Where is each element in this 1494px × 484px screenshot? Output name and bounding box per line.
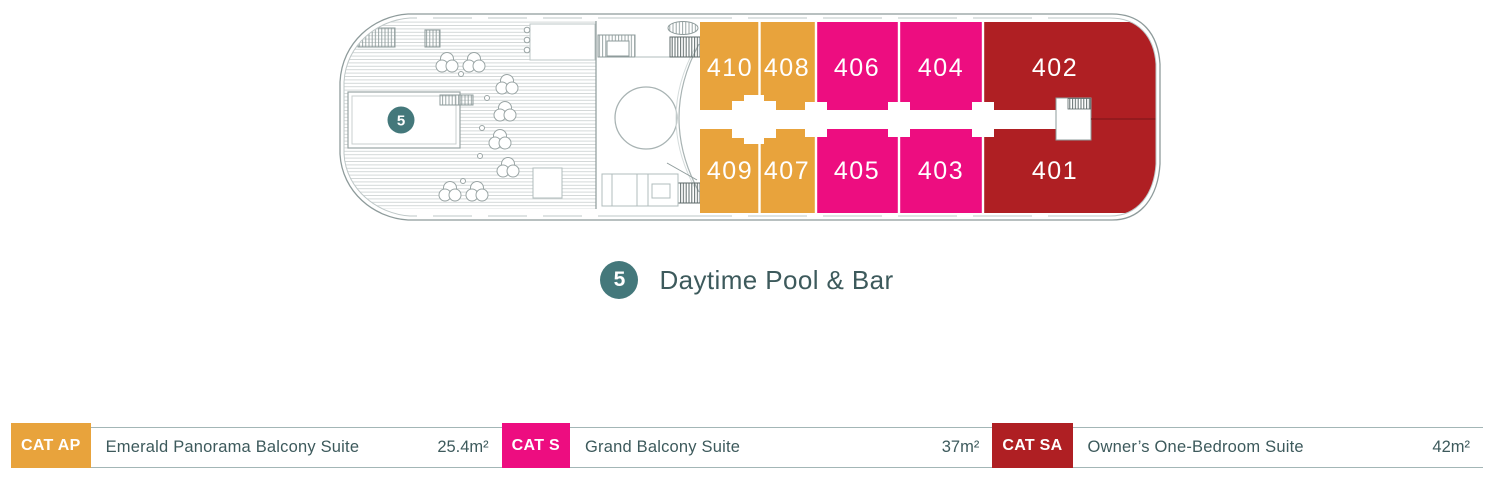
suite-size: 42m² [1432, 438, 1470, 457]
cabin-410-label: 410 [707, 54, 753, 82]
deck-plan-page: 5 [0, 0, 1494, 484]
lifeboat-icon [668, 22, 698, 35]
pool-marker-number: 5 [397, 113, 405, 130]
feature-legend: 5 Daytime Pool & Bar [0, 261, 1494, 299]
legend-item-cat-ap: CAT AP Emerald Panorama Balcony Suite 25… [11, 427, 502, 468]
cabin-407-label: 407 [764, 157, 810, 185]
stairs-icon [1068, 99, 1091, 110]
stairs-icon [670, 37, 700, 57]
cabin-blocks: 410 408 406 404 402 409 407 405 403 401 [700, 22, 1160, 213]
cabin-403-label: 403 [918, 157, 964, 185]
legend-item-cat-sa: CAT SA Owner’s One-Bedroom Suite 42m² [992, 427, 1483, 468]
feature-label: Daytime Pool & Bar [659, 265, 893, 296]
cabin-404-label: 404 [918, 54, 964, 82]
suite-name: Grand Balcony Suite [585, 438, 740, 457]
legend-item-cat-s: CAT S Grand Balcony Suite 37m² [502, 427, 993, 468]
cabin-401-label: 401 [1032, 157, 1078, 185]
category-badge: CAT SA [992, 423, 1072, 468]
category-badge: CAT S [502, 423, 570, 468]
cabin-402-label: 402 [1032, 54, 1078, 82]
category-badge: CAT AP [11, 423, 91, 468]
cabin-408-label: 408 [764, 54, 810, 82]
category-legend: CAT AP Emerald Panorama Balcony Suite 25… [11, 427, 1483, 468]
stairs-icon [440, 95, 473, 105]
suite-name: Owner’s One-Bedroom Suite [1088, 438, 1304, 457]
cabin-406-label: 406 [834, 54, 880, 82]
cabin-405-label: 405 [834, 157, 880, 185]
suite-size: 25.4m² [437, 438, 488, 457]
ship-deck-plan: 5 [330, 8, 1175, 228]
corridor [700, 110, 1056, 129]
suite-size: 37m² [942, 438, 980, 457]
stairs-icon [425, 30, 440, 47]
feature-marker-badge: 5 [600, 261, 638, 299]
suite-name: Emerald Panorama Balcony Suite [106, 438, 360, 457]
cabin-409-label: 409 [707, 157, 753, 185]
